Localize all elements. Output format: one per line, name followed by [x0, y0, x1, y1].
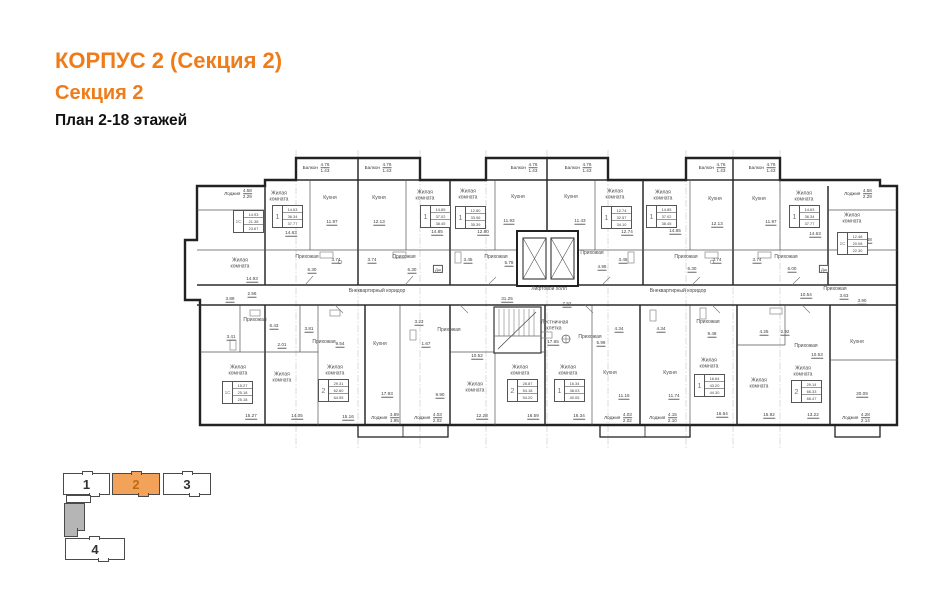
dimension-label: 12.13: [711, 221, 723, 228]
dimension-label: 3.41: [227, 334, 236, 341]
dimension-label: 3.74: [368, 257, 377, 264]
room-label: Жилая комната: [553, 365, 583, 377]
dimension-label: 16.59: [527, 413, 539, 420]
dimension-label: 20.09: [856, 391, 868, 398]
room-label: Внеквартирный коридор: [349, 289, 406, 295]
legend-section-4[interactable]: 4: [65, 538, 125, 560]
dimension-label: 7.52: [563, 301, 572, 308]
dimension-label: 12.74: [621, 229, 633, 236]
dimension-label: 2.01: [278, 342, 287, 349]
dimension-label: 6.30: [308, 267, 317, 274]
dimension-label: 15.16: [342, 414, 354, 421]
room-label: Прихожая: [794, 344, 817, 350]
legend-tower-block-foot: [64, 528, 78, 537]
room-label: Жилая комната: [267, 372, 297, 384]
dimension-label: 14.05: [291, 413, 303, 420]
dimension-label: 5.99: [597, 340, 606, 347]
room-label: Жилая комната: [789, 191, 819, 203]
room-label: Кухня: [372, 196, 385, 202]
room-label: Прихожая: [674, 255, 697, 261]
room-label: Прихожая: [243, 318, 266, 324]
apartment-info-table: 228.8754.1854.20: [507, 379, 538, 402]
apartment-info-table: 116.6443.2044.30: [694, 374, 725, 397]
apartment-info-table: 229.3162.6064.55: [318, 379, 349, 402]
room-label: Жилая комната: [460, 382, 490, 394]
area-fraction-label: Балкон4.761.43: [303, 162, 330, 174]
dimension-label: 11.74: [668, 393, 679, 400]
room-label: Прихожая: [696, 320, 719, 326]
dimension-label: 6.43: [270, 323, 279, 330]
dimension-label: 6.30: [408, 267, 417, 274]
room-label: Прихожая: [580, 251, 603, 257]
room-label: Прихожая: [437, 328, 460, 334]
dimension-label: 3.45: [464, 257, 473, 264]
dimension-label: 3.63: [840, 293, 849, 300]
dimension-label: 1.67: [422, 341, 431, 348]
room-label: Жилая комната: [410, 190, 440, 202]
dimension-label: 10.54: [800, 292, 812, 299]
room-label: Кухня: [373, 342, 386, 348]
room-label: Жилая комната: [837, 213, 867, 225]
dimension-label: 14.85: [669, 228, 681, 235]
legend-section-1[interactable]: 1: [63, 473, 110, 495]
area-fraction-label: Балкон4.761.43: [365, 162, 392, 174]
dimension-label: 9.54: [336, 341, 345, 348]
apartment-info-table: 116.3438.0340.05: [554, 379, 585, 402]
dimension-label: 10.53: [811, 352, 823, 359]
apartment-info-table: 112.8033.9635.39: [455, 206, 486, 229]
floor-plan-labels: Жилая комнатаКухняКухняЖилая комнатаЖила…: [0, 0, 941, 600]
dimension-label: 9.48: [708, 331, 717, 338]
dimension-label: 17.93: [381, 391, 393, 398]
area-fraction-label: Балкон4.761.43: [565, 162, 592, 174]
area-fraction-label: Лоджия4.032.02: [604, 412, 632, 424]
room-label: Лестничная клетка: [541, 320, 567, 332]
room-label: Кухня: [603, 371, 616, 377]
room-label: Жилая комната: [264, 191, 294, 203]
dimension-label: 3.74: [753, 257, 762, 264]
room-label: Прихожая: [774, 255, 797, 261]
area-fraction-label: Балкон4.761.43: [749, 162, 776, 174]
dimension-label: 11.93: [503, 218, 514, 225]
dimension-label: 3.23: [415, 319, 424, 326]
area-fraction-label: Балкон4.761.43: [511, 162, 538, 174]
door-symbol-label: Дш: [433, 265, 443, 273]
room-label: Кухня: [752, 197, 765, 203]
room-label: Жилая комната: [223, 365, 253, 377]
dimension-label: 2.56: [248, 291, 257, 298]
dimension-label: 2.92: [781, 329, 790, 336]
room-label: Кухня: [708, 197, 721, 203]
page: КОРПУС 2 (Секция 2) Секция 2 План 2-18 э…: [0, 0, 941, 600]
area-fraction-label: Лоджия4.152.10: [649, 412, 677, 424]
apartment-info-table: 114.8537.0238.45: [420, 205, 451, 228]
dimension-label: 14.85: [431, 229, 443, 236]
room-label: Прихожая: [312, 340, 335, 346]
apartment-info-table: 229.1466.3368.47: [791, 380, 822, 403]
room-label: Кухня: [323, 196, 336, 202]
room-label: Кухня: [663, 371, 676, 377]
area-fraction-label: Лоджия4.582.29: [844, 188, 872, 200]
dimension-label: 12.80: [477, 229, 489, 236]
dimension-label: 17.65: [547, 339, 559, 346]
area-fraction-label: Лоджия3.891.95: [371, 412, 399, 424]
dimension-label: 6.00: [788, 266, 797, 273]
dimension-label: 16.64: [716, 411, 728, 418]
dimension-label: 12.28: [476, 413, 488, 420]
room-label: Прихожая: [295, 255, 318, 261]
dimension-label: 11.97: [765, 219, 776, 226]
area-fraction-label: Лоджия4.582.29: [224, 188, 252, 200]
room-label: Жилая комната: [744, 378, 774, 390]
dimension-label: 3.74: [332, 257, 341, 264]
room-label: Жилая комната: [225, 258, 255, 270]
apartment-info-table: 1С15.2725.1825.18: [222, 381, 253, 404]
door-symbol-label: Дш: [819, 265, 829, 273]
dimension-label: 4.34: [615, 326, 624, 333]
dimension-label: 14.63: [809, 231, 821, 238]
dimension-label: 14.63: [285, 230, 297, 237]
legend-connector: [66, 495, 91, 503]
room-label: Жилая комната: [694, 358, 724, 370]
dimension-label: 15.27: [245, 413, 257, 420]
dimension-label: 11.97: [326, 219, 337, 226]
room-label: Кухня: [564, 195, 577, 201]
room-label: Внеквартирный коридор: [650, 289, 707, 295]
dimension-label: 15.92: [763, 412, 775, 419]
dimension-label: 10.52: [471, 353, 483, 360]
dimension-label: 16.34: [573, 413, 585, 420]
room-label: Жилая комната: [788, 366, 818, 378]
dimension-label: 6.30: [688, 266, 697, 273]
dimension-label: 3.90: [858, 298, 867, 305]
dimension-label: 11.16: [618, 393, 629, 400]
dimension-label: 12.13: [373, 219, 385, 226]
dimension-label: 3.45: [619, 257, 628, 264]
apartment-info-table: 114.6336.3437.77: [789, 205, 820, 228]
room-label: Кухня: [850, 340, 863, 346]
dimension-label: 3.89: [226, 296, 235, 303]
apartment-info-table: 114.6336.3437.77: [272, 205, 303, 228]
room-label: Жилая комната: [320, 365, 350, 377]
legend-section-3[interactable]: 3: [163, 473, 211, 495]
dimension-label: 14.93: [246, 276, 258, 283]
area-fraction-label: Балкон4.761.43: [699, 162, 726, 174]
apartment-info-table: 1С12.4820.0822.30: [837, 232, 868, 255]
dimension-label: 4.25: [760, 329, 769, 336]
room-label: Лифтовой холл: [531, 287, 567, 293]
room-label: Кухня: [511, 195, 524, 201]
room-label: Прихожая: [392, 255, 415, 261]
dimension-label: 9.90: [436, 392, 445, 399]
legend-section-2[interactable]: 2: [112, 473, 160, 495]
dimension-label: 11.43: [574, 218, 585, 225]
dimension-label: 3.74: [713, 257, 722, 264]
room-label: Жилая комната: [505, 365, 535, 377]
apartment-info-table: 1С14.9321.3823.67: [233, 210, 264, 233]
dimension-label: 31.25: [501, 296, 513, 303]
legend-tower-block: [64, 503, 85, 531]
room-label: Жилая комната: [648, 190, 678, 202]
dimension-label: 5.78: [505, 260, 514, 267]
dimension-label: 4.34: [657, 326, 666, 333]
dimension-label: 4.95: [598, 264, 607, 271]
room-label: Жилая комната: [600, 189, 630, 201]
dimension-label: 3.81: [305, 326, 314, 333]
room-label: Жилая комната: [453, 189, 483, 201]
area-fraction-label: Лоджия4.282.14: [842, 412, 870, 424]
area-fraction-label: Лоджия4.032.02: [414, 412, 442, 424]
apartment-info-table: 114.8537.0238.45: [646, 205, 677, 228]
dimension-label: 13.22: [807, 412, 819, 419]
apartment-info-table: 112.7432.5734.10: [601, 206, 632, 229]
